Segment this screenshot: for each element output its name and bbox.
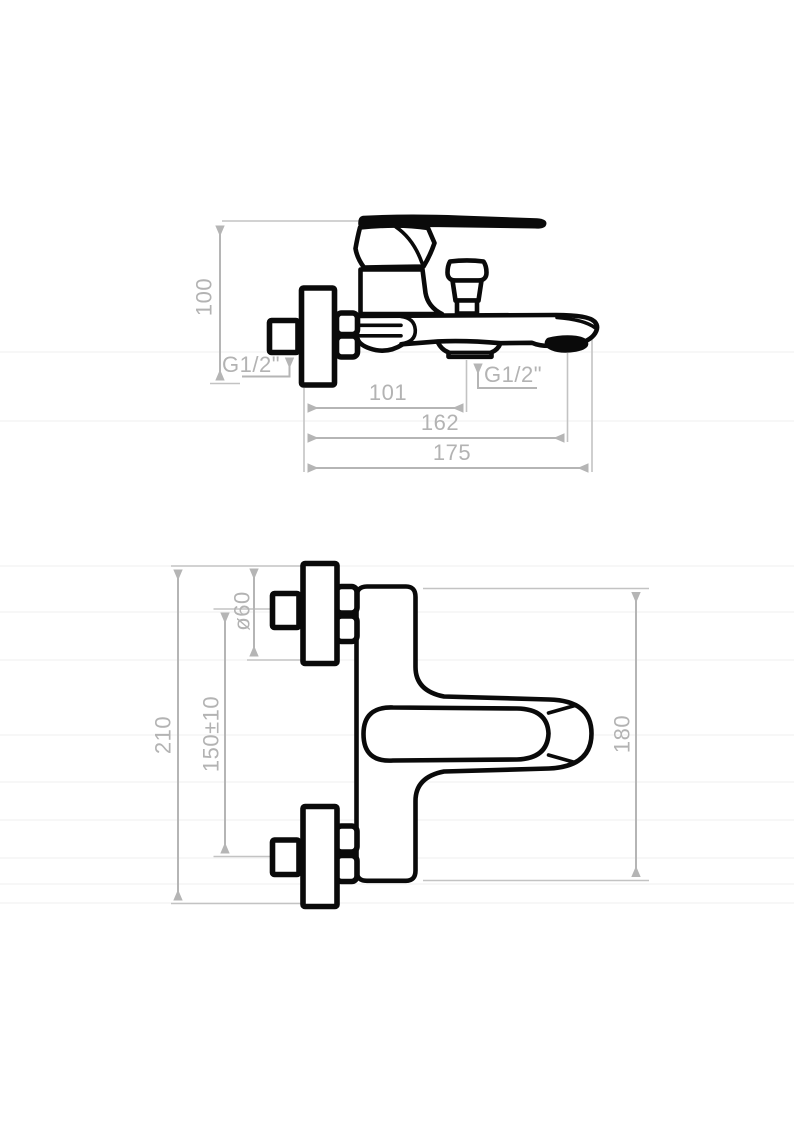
drawing-canvas: 100 G1/2" G1/2" 101 162 175	[0, 0, 794, 1123]
dim-label-175: 175	[433, 440, 471, 465]
dimension-210: 210	[151, 570, 179, 900]
dim-label-100: 100	[192, 278, 217, 316]
dim-label-101: 101	[369, 380, 407, 405]
wall-connector-bottom	[273, 840, 300, 875]
front-view: 210 ø60 150±10 180	[151, 564, 650, 907]
callout-thread-wall: G1/2"	[222, 352, 290, 377]
side-view: 100 G1/2" G1/2" 101 162 175	[192, 215, 598, 472]
escutcheon-bottom	[303, 807, 337, 907]
callout-thread-shower: G1/2"	[478, 362, 542, 388]
dimension-180: 180	[610, 593, 637, 877]
diverter-body	[453, 281, 482, 301]
wall-connector-top	[273, 594, 300, 628]
wall-connector-side	[270, 321, 299, 353]
dimension-162: 162	[308, 410, 564, 438]
dim-label-150: 150±10	[199, 696, 224, 772]
mounting-nut-upper	[337, 313, 358, 335]
diverter-cap	[448, 260, 487, 280]
escutcheon-side	[302, 288, 335, 385]
technical-drawing: 100 G1/2" G1/2" 101 162 175	[0, 0, 794, 1123]
cartridge-housing	[361, 270, 443, 315]
dim-label-180: 180	[610, 715, 635, 753]
lever-handle-front	[364, 707, 549, 760]
dimension-150: 150±10	[199, 613, 226, 853]
dim-label-210: 210	[151, 716, 176, 754]
dimension-175: 175	[308, 440, 588, 468]
spout-outlet	[545, 336, 587, 352]
dim-label-162: 162	[421, 410, 459, 435]
escutcheon-top	[303, 564, 337, 664]
faucet-side-profile	[270, 215, 598, 385]
mounting-nut-lower	[337, 336, 358, 357]
dim-label-dia60: ø60	[230, 591, 255, 630]
dimension-height-100: 100	[192, 226, 221, 380]
thread-shower-label: G1/2"	[484, 362, 542, 387]
diverter-stem	[457, 301, 477, 314]
thread-wall-label: G1/2"	[222, 352, 280, 377]
dimension-dia60: ø60	[230, 569, 255, 656]
